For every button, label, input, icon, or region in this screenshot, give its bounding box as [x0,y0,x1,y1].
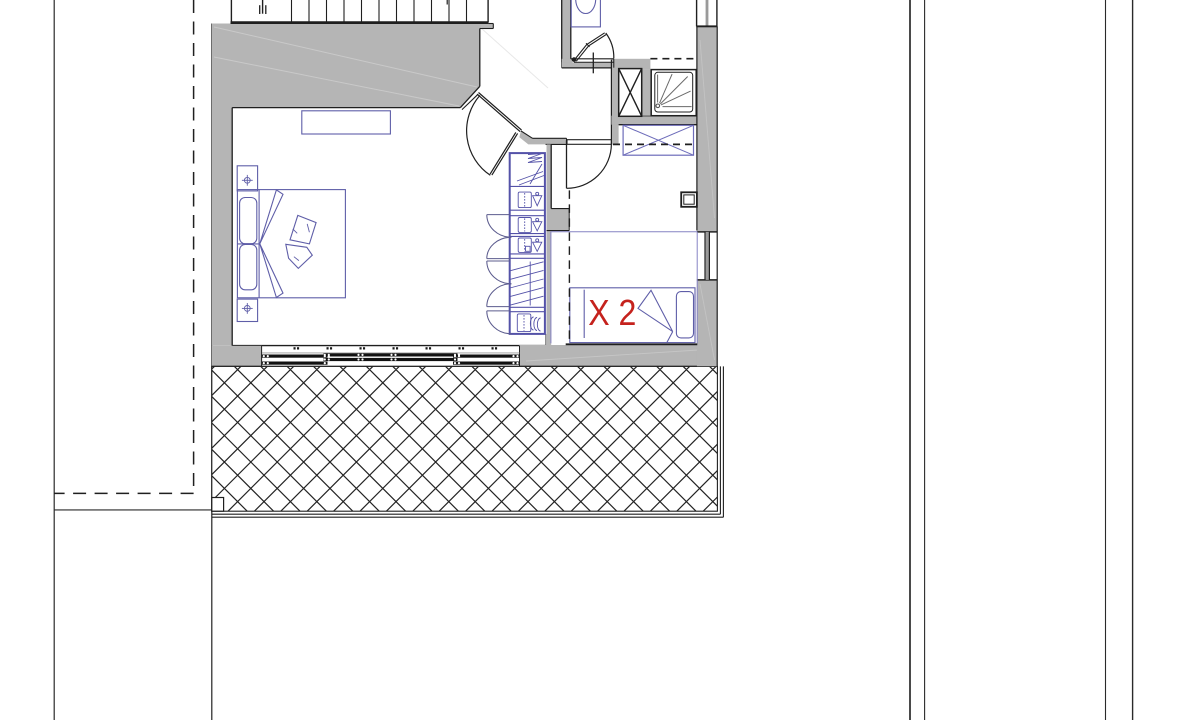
svg-text:X 2: X 2 [588,292,636,333]
